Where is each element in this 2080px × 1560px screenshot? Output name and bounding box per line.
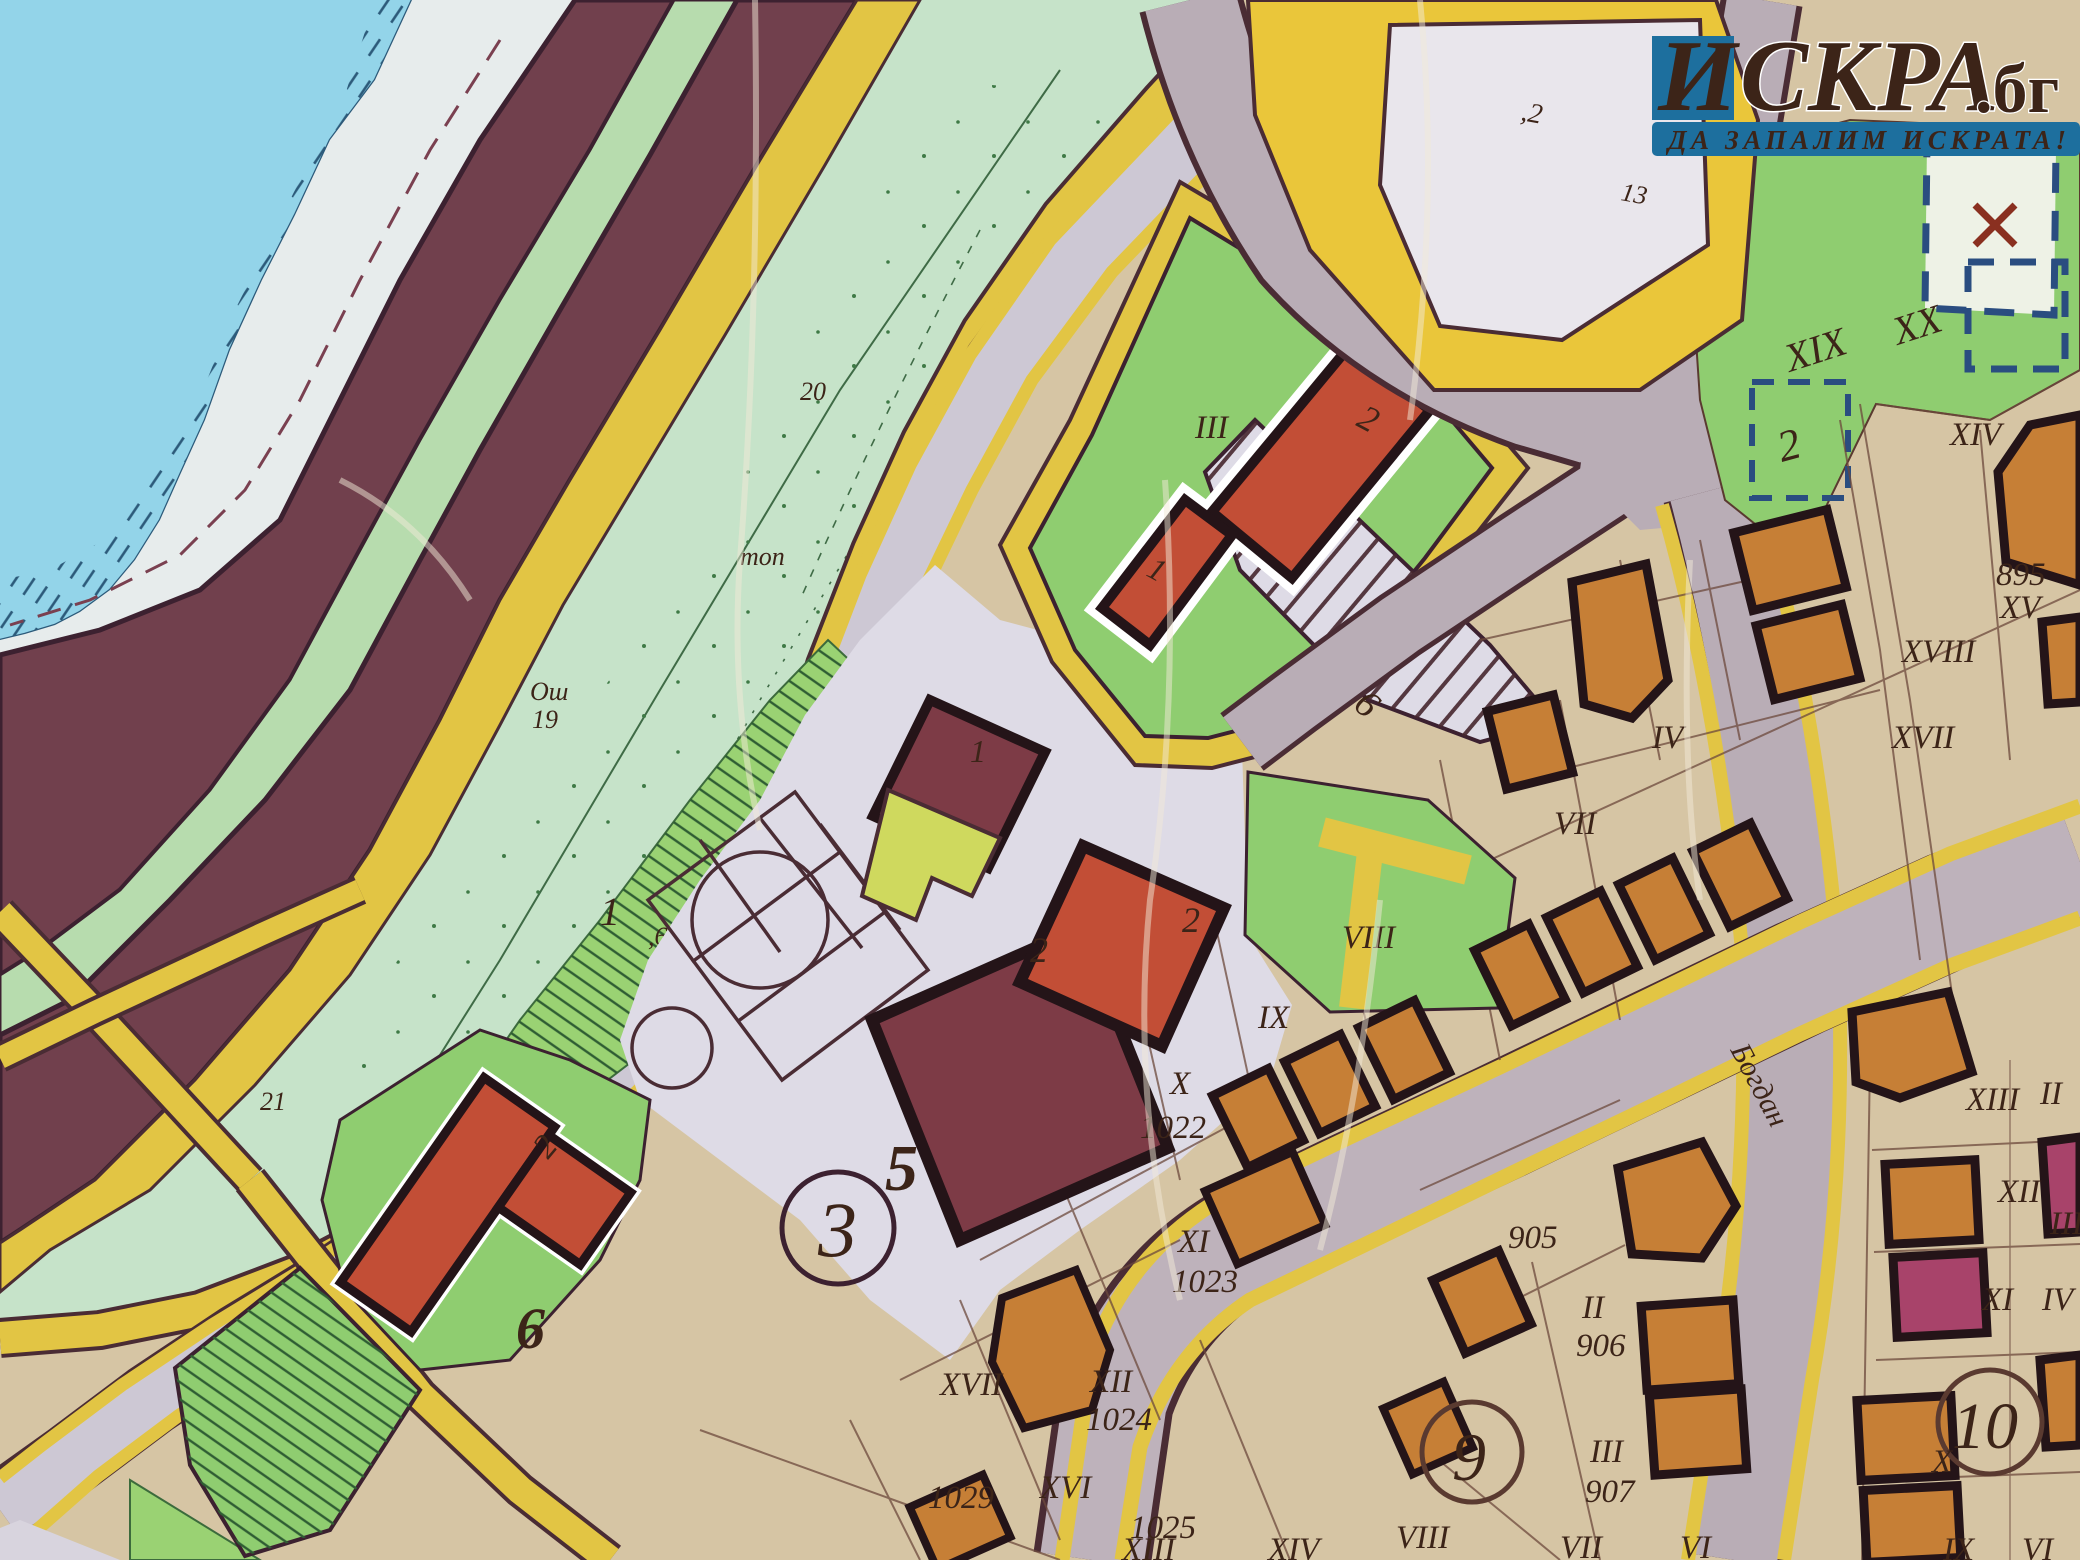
- svg-text:19: 19: [532, 705, 558, 734]
- svg-text:XVIII: XVIII: [1900, 634, 1977, 670]
- svg-text:XVII: XVII: [938, 1367, 1004, 1403]
- svg-text:И: И: [1657, 20, 1740, 133]
- svg-text:VII: VII: [1560, 1530, 1604, 1560]
- svg-text:XIV: XIV: [1948, 417, 2005, 453]
- svg-text:1: 1: [970, 733, 986, 769]
- svg-text:20: 20: [800, 377, 826, 406]
- svg-text:Ош: Ош: [530, 677, 568, 706]
- svg-text:905: 905: [1508, 1220, 1558, 1256]
- svg-text:VIII: VIII: [1396, 1520, 1451, 1556]
- svg-text:2: 2: [1182, 900, 1200, 940]
- svg-text:1023: 1023: [1172, 1264, 1238, 1300]
- svg-text:1: 1: [600, 889, 620, 934]
- svg-text:VIII: VIII: [1342, 920, 1397, 956]
- svg-text:10: 10: [1952, 1390, 2018, 1463]
- svg-text:XI: XI: [1176, 1224, 1211, 1260]
- svg-text:IV: IV: [1651, 720, 1687, 756]
- svg-text:XV: XV: [1998, 590, 2044, 626]
- svg-text:21: 21: [260, 1087, 286, 1116]
- svg-text:XVI: XVI: [1038, 1470, 1093, 1506]
- svg-text:XII: XII: [1088, 1364, 1134, 1400]
- svg-text:VI: VI: [2022, 1532, 2055, 1560]
- svg-text:XI: XI: [1980, 1282, 2015, 1318]
- svg-text:.бг: .бг: [1975, 51, 2059, 128]
- svg-text:XIII: XIII: [1120, 1532, 1177, 1560]
- svg-text:906: 906: [1576, 1328, 1626, 1364]
- svg-text:IX: IX: [1257, 1000, 1291, 1036]
- svg-text:III: III: [1589, 1434, 1625, 1470]
- svg-text:2: 2: [1030, 930, 1048, 970]
- svg-text:ДА ЗАПАЛИМ ИСКРАТА!: ДА ЗАПАЛИМ ИСКРАТА!: [1665, 125, 2066, 155]
- svg-text:mon: mon: [740, 542, 785, 571]
- svg-text:3: 3: [817, 1186, 857, 1273]
- svg-text:XIII: XIII: [1964, 1082, 2021, 1118]
- svg-text:III: III: [2049, 1206, 2080, 1242]
- svg-text:СКРА: СКРА: [1740, 20, 1999, 133]
- svg-text:X: X: [1168, 1066, 1192, 1102]
- svg-text:IX: IX: [1942, 1532, 1976, 1560]
- svg-text:III: III: [1194, 410, 1230, 446]
- svg-text:895: 895: [1996, 557, 2046, 593]
- svg-text:VII: VII: [1554, 806, 1598, 842]
- svg-text:XII: XII: [1996, 1174, 2042, 1210]
- svg-text:5: 5: [885, 1132, 918, 1205]
- svg-text:1029: 1029: [928, 1480, 994, 1516]
- svg-text:XVII: XVII: [1890, 720, 1956, 756]
- svg-text:X: X: [1930, 1444, 1954, 1480]
- svg-text:1024: 1024: [1086, 1402, 1152, 1438]
- svg-text:VI: VI: [1680, 1530, 1713, 1560]
- svg-text:907: 907: [1585, 1474, 1636, 1510]
- svg-text:XIV: XIV: [1266, 1532, 1323, 1560]
- svg-text:II: II: [1581, 1290, 1606, 1326]
- svg-text:6: 6: [516, 1296, 545, 1361]
- svg-text:13: 13: [1619, 177, 1650, 210]
- svg-text:II: II: [2039, 1076, 2064, 1112]
- svg-text:9: 9: [1452, 1419, 1486, 1495]
- svg-text:IV: IV: [2041, 1282, 2077, 1318]
